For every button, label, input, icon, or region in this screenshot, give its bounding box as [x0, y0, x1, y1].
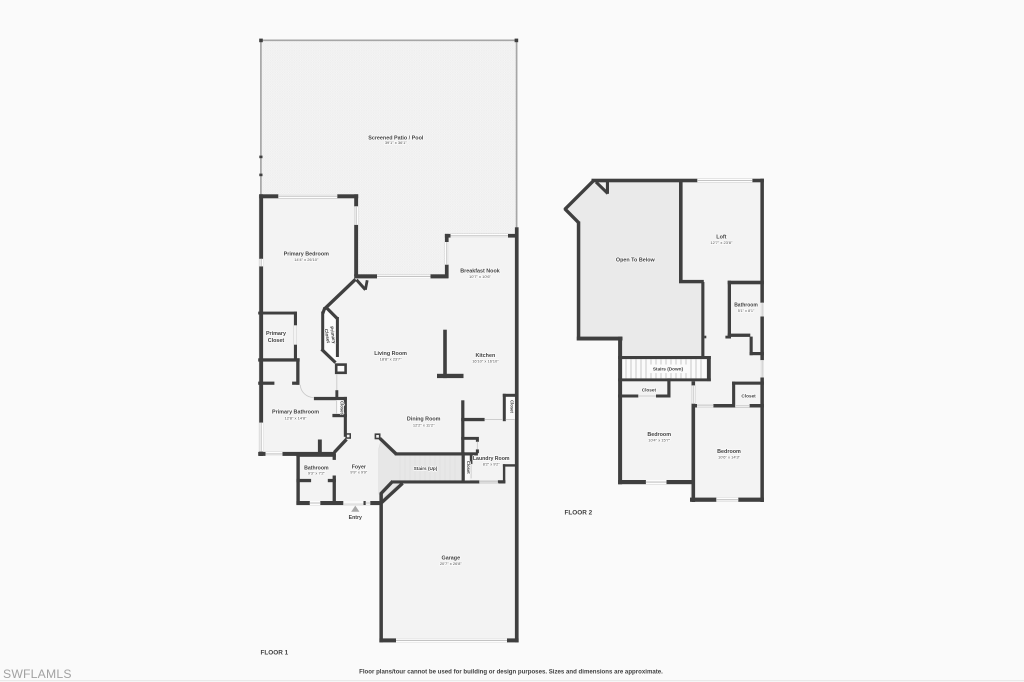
svg-text:18'8" x 23'7": 18'8" x 23'7" [380, 357, 403, 362]
svg-text:9'9" x 9'9": 9'9" x 9'9" [350, 470, 368, 475]
svg-text:5'1" x 8'1": 5'1" x 8'1" [738, 309, 755, 313]
svg-text:Closet: Closet [466, 461, 471, 474]
svg-text:9'3" x 7'2": 9'3" x 7'2" [308, 471, 326, 476]
svg-text:16'10" x 16'10": 16'10" x 16'10" [472, 358, 499, 363]
svg-text:39'1" x 36'1": 39'1" x 36'1" [385, 140, 408, 145]
svg-text:12'7" x 23'8": 12'7" x 23'8" [710, 240, 733, 245]
svg-text:10'6" x 14'3": 10'6" x 14'3" [718, 454, 741, 459]
svg-text:FLOOR 1: FLOOR 1 [261, 650, 289, 657]
svg-text:SWFLAMLS: SWFLAMLS [3, 667, 72, 681]
svg-text:14'4" x 26'10": 14'4" x 26'10" [294, 257, 319, 262]
svg-text:12'2" x 11'2": 12'2" x 11'2" [413, 422, 435, 427]
svg-text:8'2" x 9'2": 8'2" x 9'2" [483, 462, 501, 467]
svg-text:12'8" x 14'8": 12'8" x 14'8" [285, 415, 308, 420]
svg-text:20'7" x 26'8": 20'7" x 26'8" [440, 561, 463, 566]
svg-text:Closet: Closet [268, 338, 285, 344]
svg-text:Primary: Primary [266, 331, 286, 337]
svg-text:Closet: Closet [741, 394, 756, 399]
svg-text:Closet: Closet [509, 400, 514, 413]
svg-text:Stairs (Up): Stairs (Up) [414, 466, 438, 471]
svg-text:Stairs (Down): Stairs (Down) [653, 367, 684, 372]
svg-text:Entry: Entry [349, 515, 362, 521]
svg-text:Open To Below: Open To Below [616, 258, 656, 264]
svg-text:Closet: Closet [642, 387, 657, 392]
svg-text:10'7" x 10'6": 10'7" x 10'6" [469, 274, 492, 279]
svg-text:10'4" x 15'7": 10'4" x 15'7" [648, 438, 671, 443]
svg-text:Closet: Closet [340, 401, 345, 414]
svg-text:Floor plans/tour cannot be use: Floor plans/tour cannot be used for buil… [359, 668, 663, 675]
svg-text:Bathroom: Bathroom [734, 303, 758, 309]
svg-text:FLOOR 2: FLOOR 2 [565, 510, 593, 517]
